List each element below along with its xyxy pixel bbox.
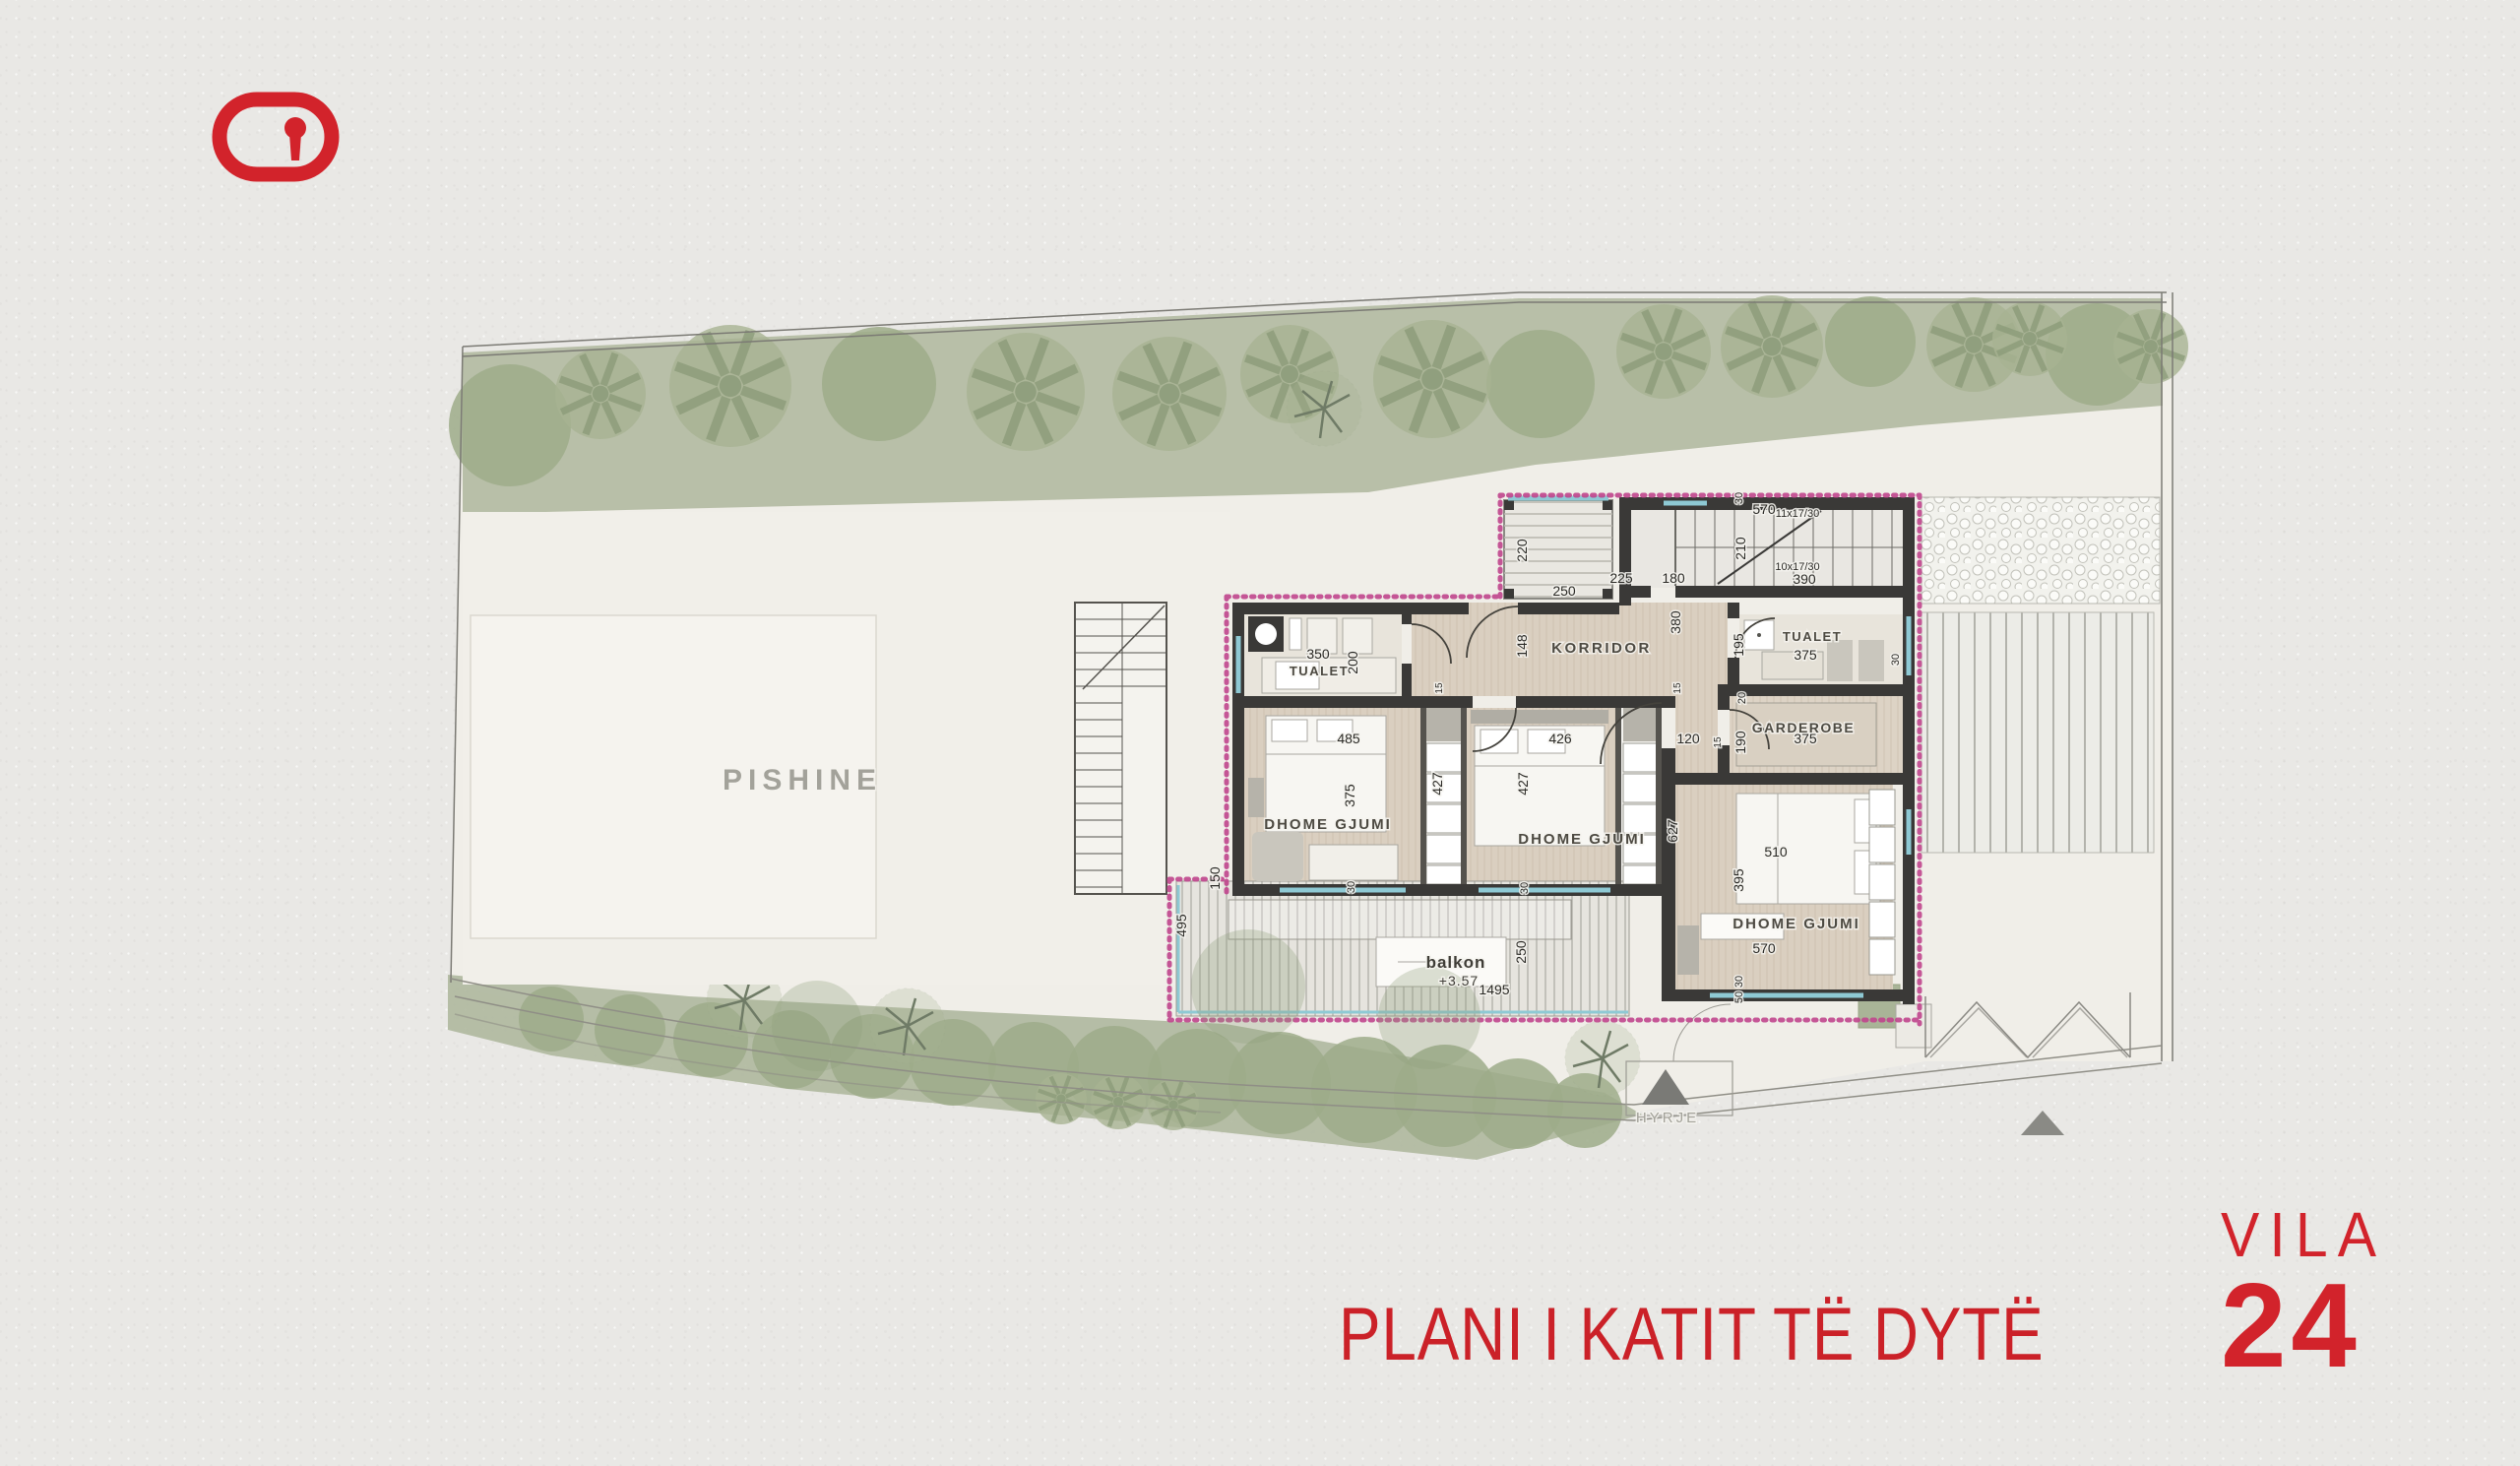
- tree-shadow: [1191, 929, 1305, 1044]
- room-label: KORRIDOR: [1551, 640, 1652, 657]
- villa-number: 24: [2221, 1270, 2414, 1380]
- dimension-label: 495: [1173, 914, 1189, 937]
- tree-center: [720, 375, 741, 397]
- dimension-label: 570: [1752, 501, 1776, 517]
- room-label: GARDEROBE: [1752, 720, 1856, 735]
- room-label: +3.57: [1439, 973, 1479, 988]
- dimension-label: 220: [1514, 539, 1530, 562]
- dimension-label: 250: [1513, 940, 1529, 964]
- tree-center: [1763, 338, 1782, 356]
- tree-fan-icon: [555, 349, 646, 439]
- dimension-label: 426: [1548, 731, 1572, 746]
- tree-branch-icon: [1565, 1021, 1640, 1096]
- dimension-label: 390: [1793, 571, 1816, 587]
- tree-round-icon: [519, 987, 584, 1052]
- dimension-label: 427: [1515, 772, 1531, 796]
- dimension-label: 195: [1731, 633, 1746, 657]
- deck-strip: [1921, 612, 2154, 853]
- tree-center: [2023, 332, 2037, 346]
- tree-shadow: [772, 981, 862, 1071]
- dimension-label: 20: [1736, 692, 1748, 704]
- dimension-label: 395: [1731, 868, 1746, 892]
- dimension-label: 375: [1342, 784, 1357, 807]
- dimension-label: 1495: [1479, 982, 1509, 997]
- room-label: balkon: [1426, 953, 1486, 972]
- tree-round-icon: [1825, 296, 1916, 387]
- tree-center: [1421, 368, 1443, 390]
- dimension-label: 627: [1665, 819, 1680, 843]
- dimension-label: 250: [1552, 583, 1576, 599]
- dimension-label: 350: [1306, 646, 1330, 662]
- tree-round-icon: [1486, 330, 1595, 438]
- floor-plan-poster: 22025022518038057021011x17/3010x17/30390…: [0, 0, 2520, 1466]
- tree-center: [1655, 343, 1671, 359]
- dimension-label: 150: [1207, 866, 1223, 890]
- tree-center: [1965, 336, 1982, 352]
- dimension-label: 30: [1346, 881, 1357, 893]
- tree-center: [2144, 340, 2158, 353]
- dimension-label: 380: [1668, 610, 1683, 634]
- parking-arrow-icon: [2021, 1111, 2064, 1135]
- tree-fan-icon: [1036, 1073, 1087, 1124]
- dimension-label: 570: [1752, 940, 1776, 956]
- tree-round-icon: [449, 364, 571, 486]
- tree-fan-icon: [1373, 320, 1491, 438]
- dimension-label: 225: [1609, 570, 1633, 586]
- dimension-label: 120: [1676, 731, 1700, 746]
- dimension-label: 190: [1732, 731, 1748, 754]
- dimension-label: 30: [1890, 654, 1902, 666]
- dimension-label: 427: [1429, 772, 1445, 796]
- dimension-label: 180: [1662, 570, 1685, 586]
- tree-fan-icon: [2113, 309, 2188, 384]
- gravel-strip: [1921, 497, 2160, 604]
- tree-center: [1113, 1097, 1123, 1107]
- tree-fan-icon: [1992, 301, 2067, 376]
- room-label: DHOME GJUMI: [1732, 916, 1860, 932]
- external-stair: [1075, 603, 1166, 894]
- dimension-label: 30: [1733, 976, 1745, 988]
- tree-branch-icon: [870, 988, 945, 1063]
- tree-center: [1168, 1100, 1177, 1109]
- dimension-label: 15: [1672, 682, 1683, 694]
- room-label: DHOME GJUMI: [1518, 831, 1646, 848]
- villa-label: VILA: [2221, 1203, 2402, 1266]
- tree-fan-icon: [1721, 295, 1823, 398]
- tree-fan-icon: [1112, 337, 1227, 451]
- room-label: TUALET: [1783, 629, 1842, 644]
- dimension-label: 15: [1434, 682, 1445, 694]
- tree-fan-icon: [1148, 1079, 1199, 1130]
- tree-center: [1281, 365, 1298, 383]
- tree-fan-icon: [967, 333, 1085, 451]
- tree-center: [1015, 381, 1037, 403]
- dimension-label: 375: [1794, 647, 1817, 663]
- tree-center: [1160, 384, 1180, 405]
- tree-branch-icon: [1287, 371, 1361, 446]
- dimension-label: 485: [1337, 731, 1360, 746]
- dimension-label: 15: [1713, 736, 1724, 748]
- dimension-label: 510: [1764, 844, 1788, 860]
- tree-fan-icon: [1091, 1074, 1146, 1129]
- room-label: HYRJE: [1636, 1110, 1699, 1126]
- tree-round-icon: [822, 327, 936, 441]
- dimension-label: 148: [1514, 634, 1530, 658]
- dimension-label: 30: [1519, 882, 1531, 894]
- dimension-label: 50: [1733, 991, 1745, 1003]
- villa-block: VILA 24: [2221, 1203, 2418, 1380]
- site-plan: 22025022518038057021011x17/3010x17/30390…: [0, 0, 2520, 1466]
- tree-fan-icon: [1616, 304, 1711, 399]
- dimension-label: 30: [1733, 492, 1745, 504]
- dimension-label: 11x17/30: [1776, 508, 1819, 520]
- tree-center: [593, 386, 609, 403]
- room-label: DHOME GJUMI: [1264, 816, 1392, 833]
- room-label: TUALET: [1290, 664, 1349, 678]
- plan-title: PLANI I KATIT TË DYTË: [1339, 1292, 2116, 1377]
- room-label: PISHINE: [723, 764, 882, 797]
- dimension-label: 210: [1732, 537, 1748, 560]
